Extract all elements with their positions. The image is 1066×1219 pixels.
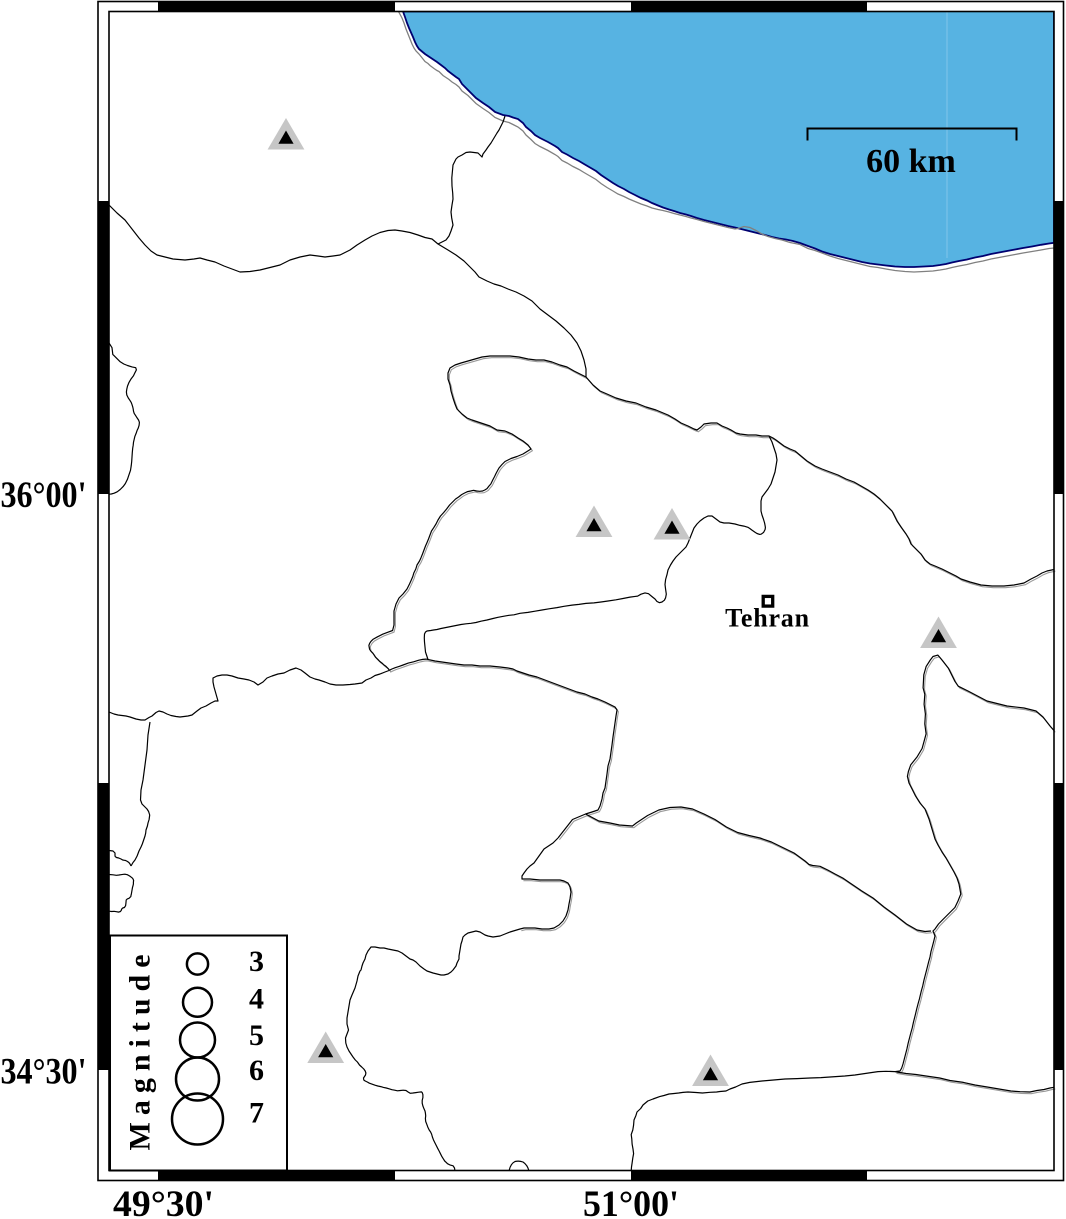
svg-text:7: 7 — [249, 1097, 264, 1130]
svg-text:Magnitude: Magnitude — [124, 947, 157, 1150]
svg-text:Tehran: Tehran — [725, 604, 810, 633]
svg-text:36°00': 36°00' — [1, 475, 87, 516]
svg-text:51°00': 51°00' — [583, 1184, 679, 1219]
svg-text:4: 4 — [249, 983, 264, 1016]
svg-text:3: 3 — [249, 945, 264, 978]
svg-text:60 km: 60 km — [866, 143, 956, 180]
svg-text:5: 5 — [249, 1019, 264, 1052]
svg-text:6: 6 — [249, 1054, 264, 1087]
svg-text:34°30': 34°30' — [1, 1052, 87, 1093]
svg-text:49°30': 49°30' — [113, 1184, 214, 1219]
